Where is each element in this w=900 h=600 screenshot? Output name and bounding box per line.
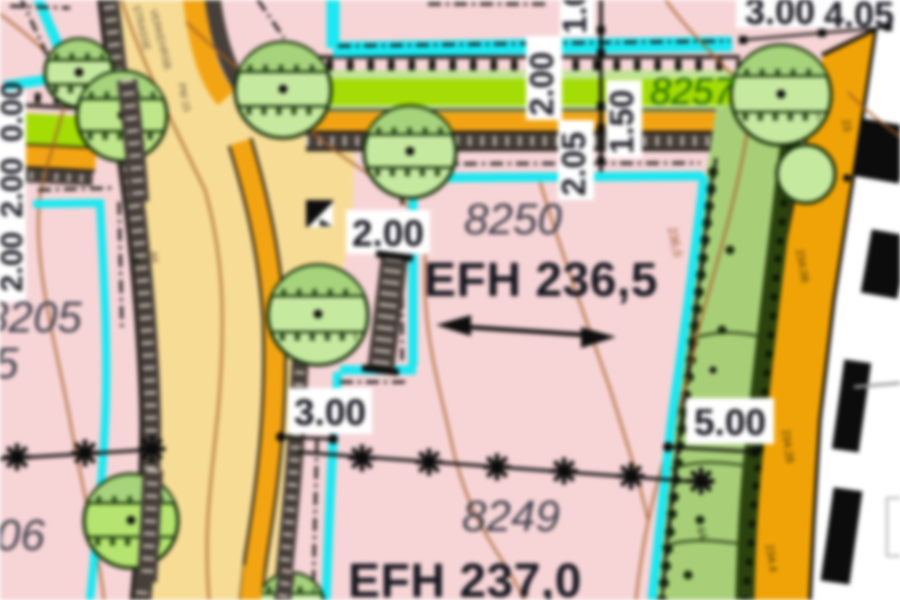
svg-text:1.50: 1.50 (603, 90, 640, 154)
svg-text:5: 5 (0, 339, 19, 388)
svg-text:4.05: 4.05 (824, 0, 894, 35)
svg-text:5.00: 5.00 (694, 402, 766, 443)
svg-text:23: 23 (839, 118, 853, 132)
svg-text:8249: 8249 (462, 492, 560, 541)
svg-text:8257: 8257 (650, 71, 736, 113)
svg-text:3.00: 3.00 (294, 392, 366, 433)
svg-text:3.00: 3.00 (745, 0, 815, 32)
svg-text:2.00: 2.00 (0, 232, 29, 292)
svg-text:2.00: 2.00 (523, 52, 560, 116)
svg-text:8250: 8250 (464, 195, 562, 244)
svg-text:EFH 237,0: EFH 237,0 (348, 555, 582, 600)
svg-text:06: 06 (0, 511, 45, 560)
svg-text:1.00: 1.00 (556, 0, 593, 34)
svg-text:0.00: 0.00 (0, 82, 29, 142)
svg-text:2.00: 2.00 (352, 213, 424, 254)
svg-text:8205: 8205 (0, 293, 82, 342)
svg-text:2.00: 2.00 (0, 158, 29, 218)
svg-text:EFH 236,5: EFH 236,5 (424, 254, 658, 307)
svg-text:2.05: 2.05 (555, 132, 592, 196)
